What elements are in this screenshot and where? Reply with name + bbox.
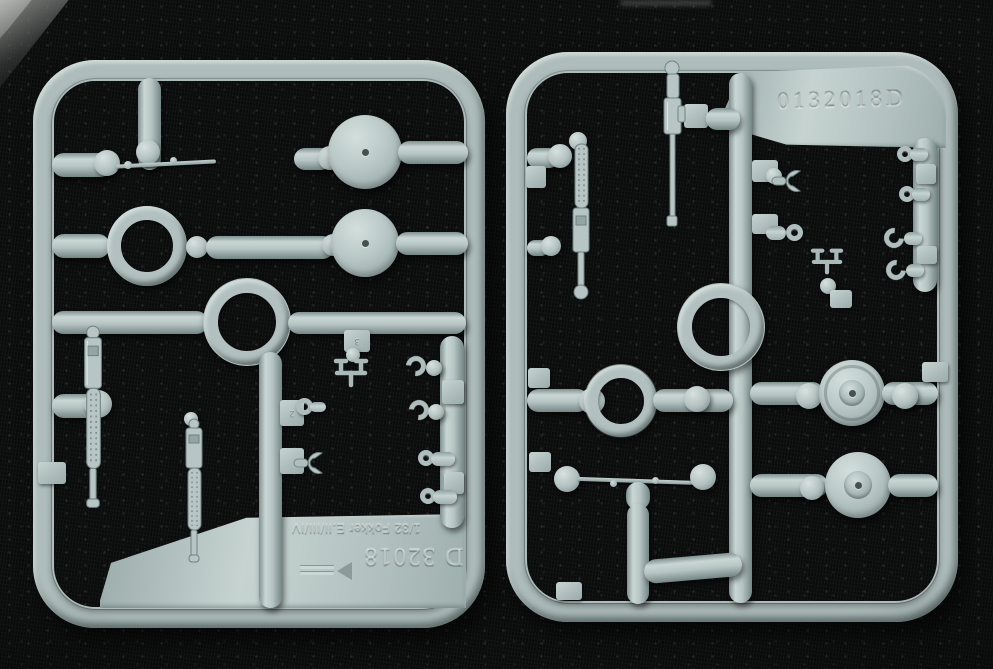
fabric-highlight (620, 0, 712, 6)
wheel-disc-part (331, 209, 399, 277)
runner (706, 108, 740, 130)
gate-ball (426, 360, 442, 376)
wheel-part (825, 452, 891, 518)
cowl-ring-part (585, 365, 657, 437)
tire-ring-part (677, 283, 765, 371)
axle-hole (855, 482, 862, 489)
eyelet-neck (433, 490, 457, 504)
wheel-part (819, 360, 885, 426)
molding-tab (38, 462, 66, 484)
runner (288, 312, 466, 334)
eyelet-neck (766, 226, 786, 240)
wire-bead (652, 477, 659, 484)
gate-ball (796, 383, 822, 409)
eyelet-neck (910, 148, 928, 161)
molding-tab (922, 362, 948, 382)
runner (259, 352, 282, 608)
axle-bracket-part (332, 356, 370, 390)
manufacturer-logo-icon (294, 556, 352, 586)
gate-ball (684, 386, 710, 412)
wire-bead (124, 161, 132, 169)
axle-bracket-part (808, 246, 846, 276)
cowl-ring-part (107, 206, 187, 286)
runner (627, 504, 649, 604)
gate-ball (136, 140, 160, 164)
axle-hole (849, 390, 856, 397)
logo-shield-icon (337, 562, 352, 580)
tire-ring-part (203, 278, 291, 366)
eyelet-neck (906, 264, 924, 277)
runner (52, 234, 110, 258)
axle-hole (362, 240, 369, 247)
gate-ball (186, 236, 208, 258)
machine-gun-part (74, 324, 112, 520)
fork-part (294, 450, 326, 476)
eyelet-neck (310, 402, 326, 412)
wire-bead (170, 157, 177, 164)
molding-tab (830, 290, 852, 308)
eyelet-part (786, 224, 803, 241)
molding-tab (917, 246, 937, 264)
runner (396, 232, 468, 255)
gate-ball (892, 383, 918, 409)
machine-gun-part (176, 418, 212, 574)
machine-gun-part (563, 142, 599, 300)
molding-tab (916, 164, 936, 184)
eyelet-neck (912, 188, 930, 201)
gate-ball (800, 476, 824, 500)
sprue-code-label: 0132018D (754, 82, 931, 119)
eyelet-neck (904, 232, 922, 245)
machine-gun-part (656, 60, 688, 232)
runner (398, 141, 468, 164)
eyelet-neck (431, 452, 455, 466)
wire-bead (610, 480, 617, 487)
photo-background: 1/32 Fokker E.II/III/IV D 32018 3 2 (0, 0, 993, 669)
runner (206, 236, 334, 259)
molding-tab (529, 452, 551, 472)
molding-tab (442, 380, 464, 404)
axle-hole (362, 149, 369, 156)
kit-number-label: D 32018 (352, 538, 474, 574)
gate-ball (690, 464, 716, 490)
gate-ball (428, 404, 444, 420)
gate-ball (94, 150, 120, 176)
molding-tab (528, 368, 550, 388)
molding-tab (556, 582, 582, 600)
gate-ball (541, 236, 561, 256)
wheel-disc-part (328, 115, 402, 189)
fork-part (772, 168, 804, 194)
logo-text-bars (300, 567, 334, 576)
runner (888, 474, 938, 497)
molding-tab (526, 166, 546, 188)
gate-ball (554, 466, 580, 492)
